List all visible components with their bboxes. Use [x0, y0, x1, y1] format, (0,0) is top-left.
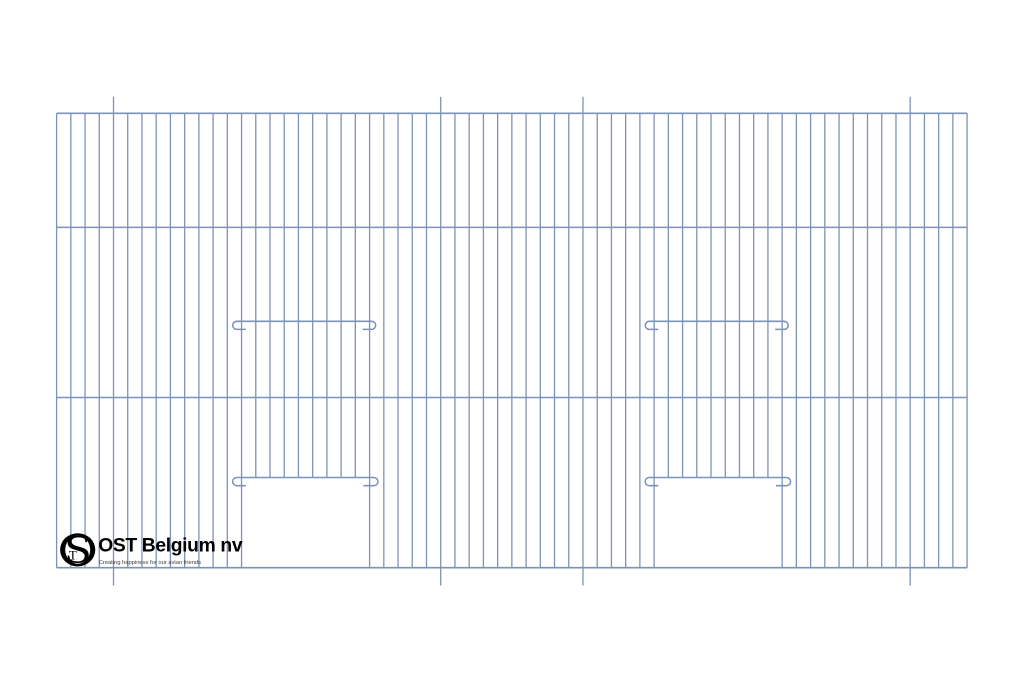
- svg-text:Creating happiness for our avi: Creating happiness for our avian friends: [99, 560, 202, 566]
- svg-text:T: T: [69, 548, 77, 563]
- svg-text:OST Belgium nv: OST Belgium nv: [98, 535, 243, 556]
